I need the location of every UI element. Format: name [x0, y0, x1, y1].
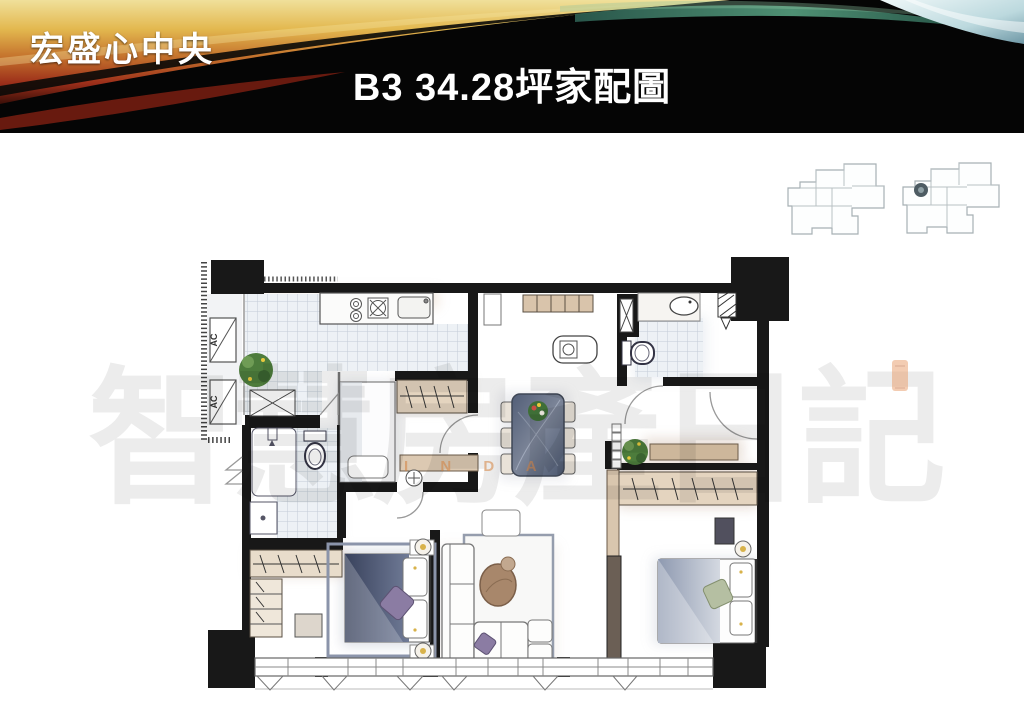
pillow — [348, 456, 388, 478]
ac-label: AC — [209, 333, 219, 346]
tv-wall — [607, 556, 621, 658]
page-title: B3 34.28坪家配圖 — [0, 56, 1024, 111]
title-banner: 宏盛心中央 B3 34.28坪家配圖 — [0, 0, 1024, 133]
pipe-shaft — [718, 293, 736, 329]
watermark-seal-icon — [892, 360, 908, 391]
dining-area — [501, 394, 575, 476]
wardrobe — [397, 380, 467, 413]
slide-page: { "header": { "project_name": "宏盛心中央", "… — [0, 0, 1024, 722]
key-plans — [786, 156, 1024, 246]
key-plan-left — [788, 164, 884, 234]
desk — [400, 455, 478, 486]
bedroom-2 — [607, 470, 757, 658]
shelf-unit — [250, 579, 282, 637]
living-room — [442, 510, 553, 668]
bed — [345, 554, 430, 642]
bed — [658, 559, 756, 643]
ac-unit-2: AC — [209, 380, 236, 424]
key-plan-right — [903, 163, 999, 233]
bedroom-3 — [340, 380, 478, 486]
kitchen — [320, 293, 433, 324]
nightstand — [715, 518, 734, 544]
kitchen-peninsula — [553, 336, 597, 363]
unit-marker-icon — [914, 183, 928, 197]
toilet-icon — [622, 341, 654, 365]
wardrobe — [619, 472, 757, 505]
ac-label: AC — [209, 395, 219, 408]
window-band — [255, 658, 713, 690]
entry-furniture — [484, 294, 597, 363]
kitchen-floor — [322, 324, 468, 371]
floor-plan: AC AC — [198, 252, 790, 706]
cabinet — [295, 614, 322, 637]
basin-icon — [670, 297, 698, 315]
ac-unit-1: AC — [209, 318, 236, 362]
tv-console — [650, 444, 738, 460]
toilet-icon — [304, 431, 326, 469]
